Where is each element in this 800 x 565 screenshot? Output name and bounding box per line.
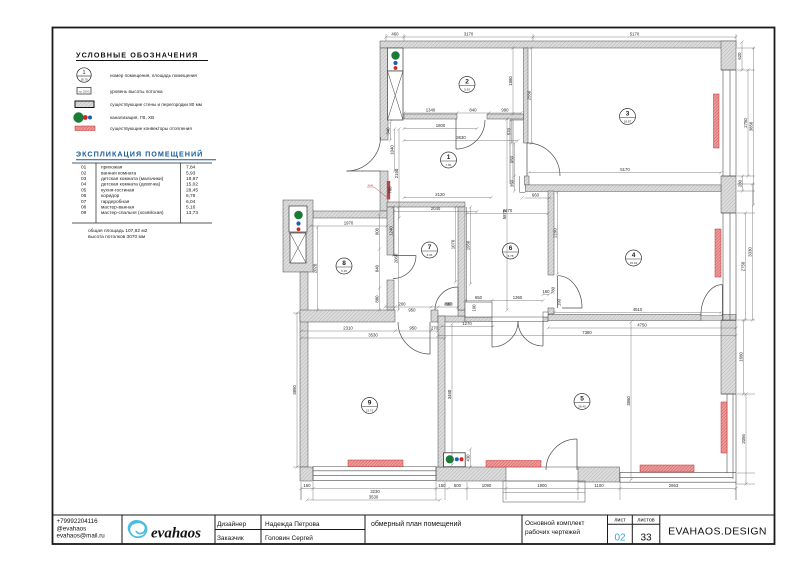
svg-text:2: 2: [465, 79, 469, 86]
svg-text:3530: 3530: [369, 495, 379, 500]
svg-text:EVAHAOS.DESIGN: EVAHAOS.DESIGN: [668, 526, 767, 538]
svg-text:2020: 2020: [312, 263, 317, 273]
svg-text:Заказчик: Заказчик: [217, 535, 244, 542]
svg-text:УСЛОВНЫЕ ОБОЗНАЧЕНИЯ: УСЛОВНЫЕ ОБОЗНАЧЕНИЯ: [76, 51, 198, 60]
svg-text:500: 500: [454, 483, 462, 488]
svg-text:Основной комплект: Основной комплект: [525, 519, 584, 527]
svg-text:1360: 1360: [513, 295, 523, 300]
svg-text:5,16: 5,16: [186, 205, 196, 211]
svg-text:листов: листов: [637, 518, 655, 524]
svg-text:8: 8: [342, 260, 346, 267]
svg-text:02: 02: [614, 533, 626, 544]
svg-text:18.70: 18.70: [81, 78, 88, 82]
svg-text:950: 950: [409, 326, 417, 331]
svg-text:существующие конвекторы отопл: существующие конвекторы отопления: [110, 126, 192, 131]
svg-text:04: 04: [81, 182, 87, 188]
svg-text:прихожая: прихожая: [101, 166, 123, 171]
svg-text:детская комната (девочка): детская комната (девочка): [101, 182, 161, 188]
svg-text:08: 08: [81, 205, 87, 211]
svg-text:18.87: 18.87: [624, 120, 632, 124]
svg-text:15,02: 15,02: [186, 182, 198, 188]
svg-text:28.45: 28.45: [578, 405, 586, 409]
svg-text:7.84: 7.84: [446, 163, 452, 167]
svg-text:160: 160: [542, 289, 550, 294]
svg-text:лист: лист: [614, 518, 626, 524]
svg-text:мастер-спальня (хозяйская): мастер-спальня (хозяйская): [101, 209, 164, 216]
svg-text:мастер-ванная: мастер-ванная: [101, 206, 135, 211]
svg-text:620: 620: [737, 52, 742, 60]
svg-text:2056: 2056: [741, 434, 746, 444]
svg-text:1660: 1660: [738, 352, 743, 362]
svg-text:пр.2500: пр.2500: [79, 90, 90, 94]
svg-text:9: 9: [368, 400, 372, 407]
svg-text:1900: 1900: [537, 483, 547, 488]
svg-text:190: 190: [557, 298, 562, 306]
svg-text:2120: 2120: [435, 192, 445, 197]
svg-text:190: 190: [472, 304, 477, 312]
svg-text:1070: 1070: [450, 239, 455, 249]
svg-text:03: 03: [81, 176, 87, 182]
svg-text:2750: 2750: [740, 261, 745, 271]
svg-text:Головин Сергей: Головин Сергей: [265, 534, 313, 542]
svg-text:2750: 2750: [743, 118, 748, 128]
svg-text:840: 840: [374, 264, 379, 272]
svg-text:рабочих чертежей: рабочих чертежей: [525, 528, 580, 536]
svg-text:06: 06: [81, 193, 87, 199]
svg-text:950: 950: [408, 307, 416, 312]
svg-text:гардеробная: гардеробная: [101, 199, 130, 205]
svg-text:33: 33: [640, 533, 652, 544]
svg-text:6,78: 6,78: [186, 193, 196, 199]
svg-text:2190: 2190: [552, 228, 557, 238]
svg-text:2550: 2550: [526, 90, 531, 100]
svg-text:990: 990: [501, 108, 509, 113]
svg-text:660: 660: [532, 193, 540, 198]
svg-text:уровень высоты потолка: уровень высоты потолка: [110, 89, 163, 94]
svg-text:общая площадь 107,82 м2: общая площадь 107,82 м2: [88, 228, 148, 234]
svg-text:3860: 3860: [626, 396, 631, 406]
svg-text:430: 430: [465, 454, 470, 462]
svg-text:канализация, ГВ, ХВ: канализация, ГВ, ХВ: [110, 115, 154, 120]
svg-text:780: 780: [388, 186, 393, 194]
svg-text:780: 780: [551, 286, 556, 294]
svg-text:1100: 1100: [594, 483, 604, 488]
svg-text:1090: 1090: [482, 483, 492, 488]
svg-text:650: 650: [475, 295, 483, 300]
svg-text:890: 890: [445, 302, 453, 307]
svg-text:3460: 3460: [447, 389, 452, 399]
svg-text:5170: 5170: [630, 32, 640, 37]
svg-text:340: 340: [385, 127, 390, 135]
svg-text:7,84: 7,84: [186, 165, 196, 171]
svg-text:09: 09: [81, 210, 87, 216]
svg-text:1040: 1040: [389, 145, 394, 155]
svg-text:1240: 1240: [388, 226, 393, 236]
svg-text:880: 880: [374, 295, 379, 303]
svg-text:зона: зона: [368, 184, 374, 187]
svg-text:кухня-гостиная: кухня-гостиная: [101, 188, 135, 193]
svg-text:существующие стены и перегород: существующие стены и перегородки 80 мм: [110, 102, 202, 107]
svg-text:07: 07: [81, 199, 87, 205]
svg-text:3330: 3330: [747, 247, 752, 257]
svg-text:150: 150: [303, 483, 311, 488]
svg-text:1270: 1270: [462, 321, 472, 326]
svg-text:1340: 1340: [426, 108, 436, 113]
svg-text:6: 6: [509, 245, 513, 252]
svg-text:Дизайнер: Дизайнер: [217, 520, 246, 528]
svg-text:3890: 3890: [292, 385, 297, 395]
svg-text:5170: 5170: [620, 167, 630, 172]
svg-text:6.78: 6.78: [508, 254, 514, 258]
svg-text:15.02: 15.02: [630, 261, 638, 265]
svg-text:4750: 4750: [637, 323, 647, 328]
svg-text:2863: 2863: [669, 483, 679, 488]
svg-text:4: 4: [632, 252, 636, 259]
svg-text:13.73: 13.73: [366, 409, 374, 413]
svg-text:460: 460: [391, 32, 399, 37]
svg-text:коридор: коридор: [101, 194, 120, 199]
svg-text:1950: 1950: [465, 240, 470, 250]
svg-text:номер помещения, площадь помещ: номер помещения, площадь помещения: [110, 73, 197, 78]
svg-text:обмерный план помещений: обмерный план помещений: [371, 520, 461, 528]
svg-text:1800: 1800: [436, 123, 446, 128]
svg-text:2310: 2310: [343, 326, 353, 331]
svg-text:7380: 7380: [582, 330, 592, 335]
svg-text:5870: 5870: [502, 209, 507, 219]
svg-text:5.16: 5.16: [341, 269, 347, 273]
svg-text:1: 1: [447, 154, 451, 161]
svg-text:3230: 3230: [370, 489, 380, 494]
svg-text:3170: 3170: [464, 32, 474, 37]
svg-text:2060: 2060: [393, 253, 398, 263]
svg-text:270: 270: [431, 326, 439, 331]
svg-text:280: 280: [737, 179, 742, 187]
svg-text:5,93: 5,93: [186, 170, 196, 176]
svg-text:3630: 3630: [456, 135, 466, 140]
svg-text:Надежда Петрова: Надежда Петрова: [265, 521, 320, 528]
svg-text:900: 900: [374, 227, 379, 235]
svg-text:высота потолков 3070 мм: высота потолков 3070 мм: [88, 234, 145, 240]
svg-text:4510: 4510: [633, 307, 643, 312]
svg-text:5: 5: [580, 396, 584, 403]
svg-text:7: 7: [428, 244, 432, 251]
svg-text:02: 02: [81, 170, 87, 176]
svg-text:ЭКСПЛИКАЦИЯ ПОМЕЩЕНИЙ: ЭКСПЛИКАЦИЯ ПОМЕЩЕНИЙ: [76, 150, 203, 159]
svg-text:13,73: 13,73: [186, 210, 198, 216]
svg-text:01: 01: [81, 165, 87, 171]
svg-text:350: 350: [509, 179, 514, 187]
svg-text:3530: 3530: [368, 333, 378, 338]
svg-text:1970: 1970: [344, 221, 354, 226]
svg-text:1880: 1880: [508, 76, 513, 86]
svg-text:3: 3: [626, 111, 630, 118]
svg-text:6,04: 6,04: [186, 199, 196, 205]
svg-text:1: 1: [82, 70, 85, 76]
svg-text:детская комната (мальчики): детская комната (мальчики): [101, 176, 164, 182]
svg-text:evahaos@mail.ru: evahaos@mail.ru: [57, 533, 106, 540]
svg-text:200: 200: [398, 301, 406, 306]
svg-text:2160: 2160: [394, 168, 399, 178]
svg-text:@evahaos: @evahaos: [57, 525, 87, 532]
svg-text:840: 840: [469, 108, 477, 113]
svg-text:+79992204116: +79992204116: [57, 518, 99, 525]
svg-text:3850: 3850: [748, 121, 753, 131]
svg-text:950: 950: [509, 155, 514, 163]
svg-text:5.93: 5.93: [464, 88, 470, 92]
svg-text:05: 05: [81, 187, 87, 193]
svg-text:evahaos: evahaos: [151, 526, 201, 542]
svg-text:28,45: 28,45: [186, 187, 198, 193]
svg-text:ванная комната: ванная комната: [101, 171, 137, 176]
svg-text:2040: 2040: [431, 206, 441, 211]
svg-text:6.04: 6.04: [427, 253, 433, 257]
svg-text:18,87: 18,87: [186, 176, 198, 182]
